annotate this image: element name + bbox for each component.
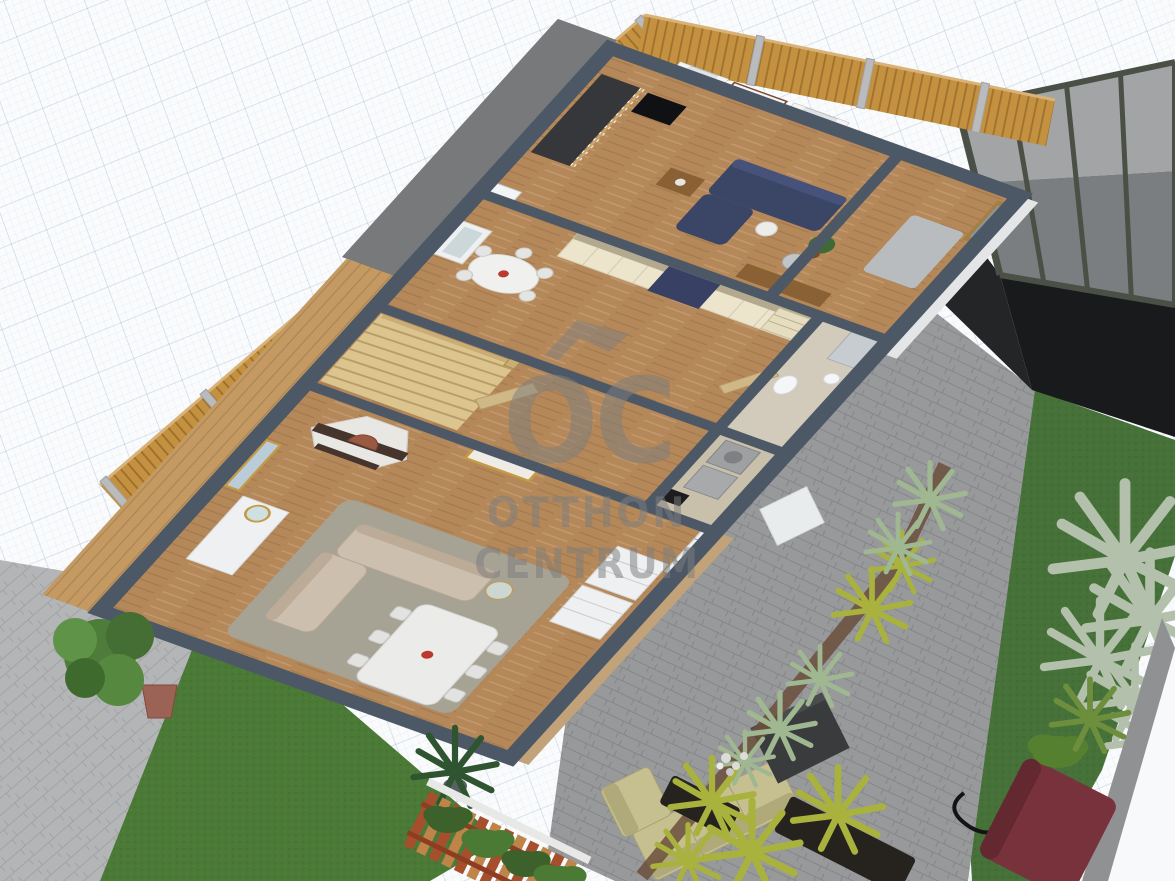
watermark-logo-text: OC xyxy=(503,353,673,490)
watermark-line2: CENTRUM xyxy=(474,539,700,588)
watermark-line1: OTTHON xyxy=(487,488,687,537)
floorplan-3d-viewport[interactable]: OC OTTHON CENTRUM xyxy=(0,0,1175,881)
scene-svg: OC OTTHON CENTRUM xyxy=(0,0,1175,881)
watermark: OC OTTHON CENTRUM xyxy=(474,320,700,588)
